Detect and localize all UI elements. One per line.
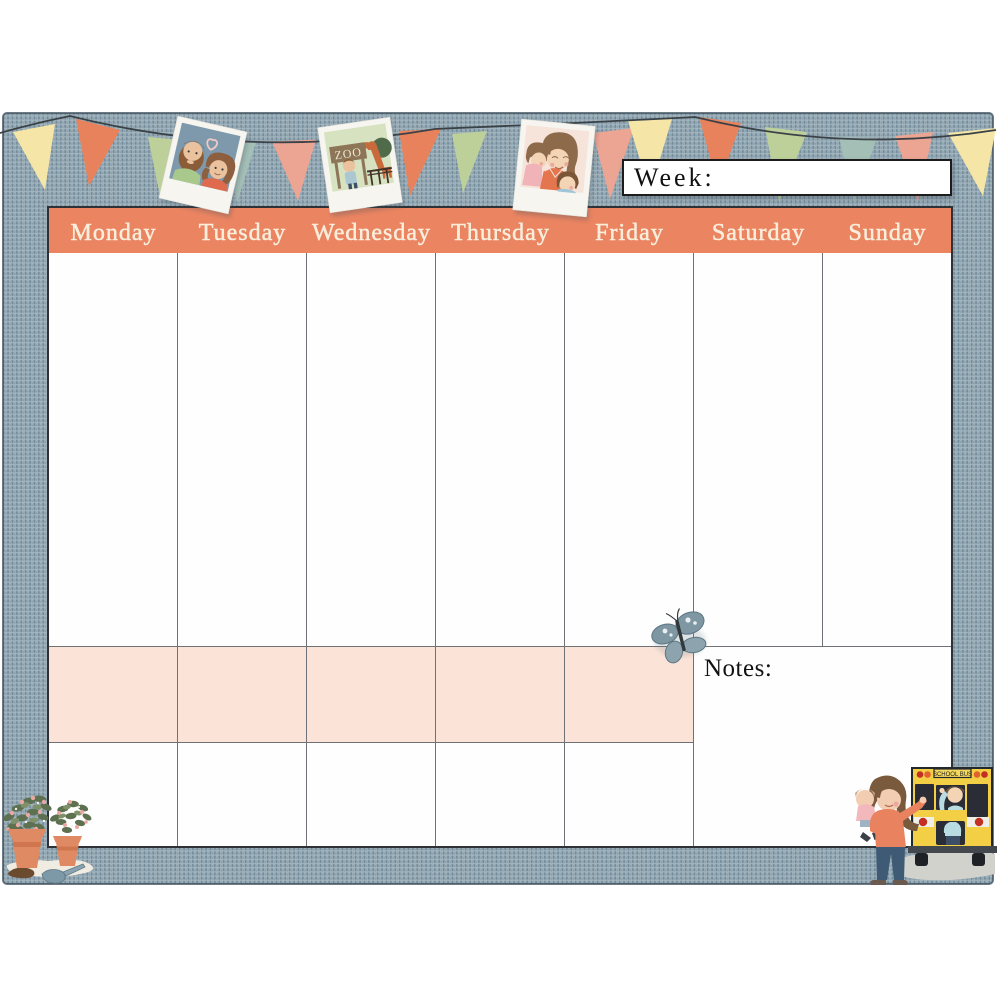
svg-text:SCHOOL BUS: SCHOOL BUS (933, 772, 972, 778)
